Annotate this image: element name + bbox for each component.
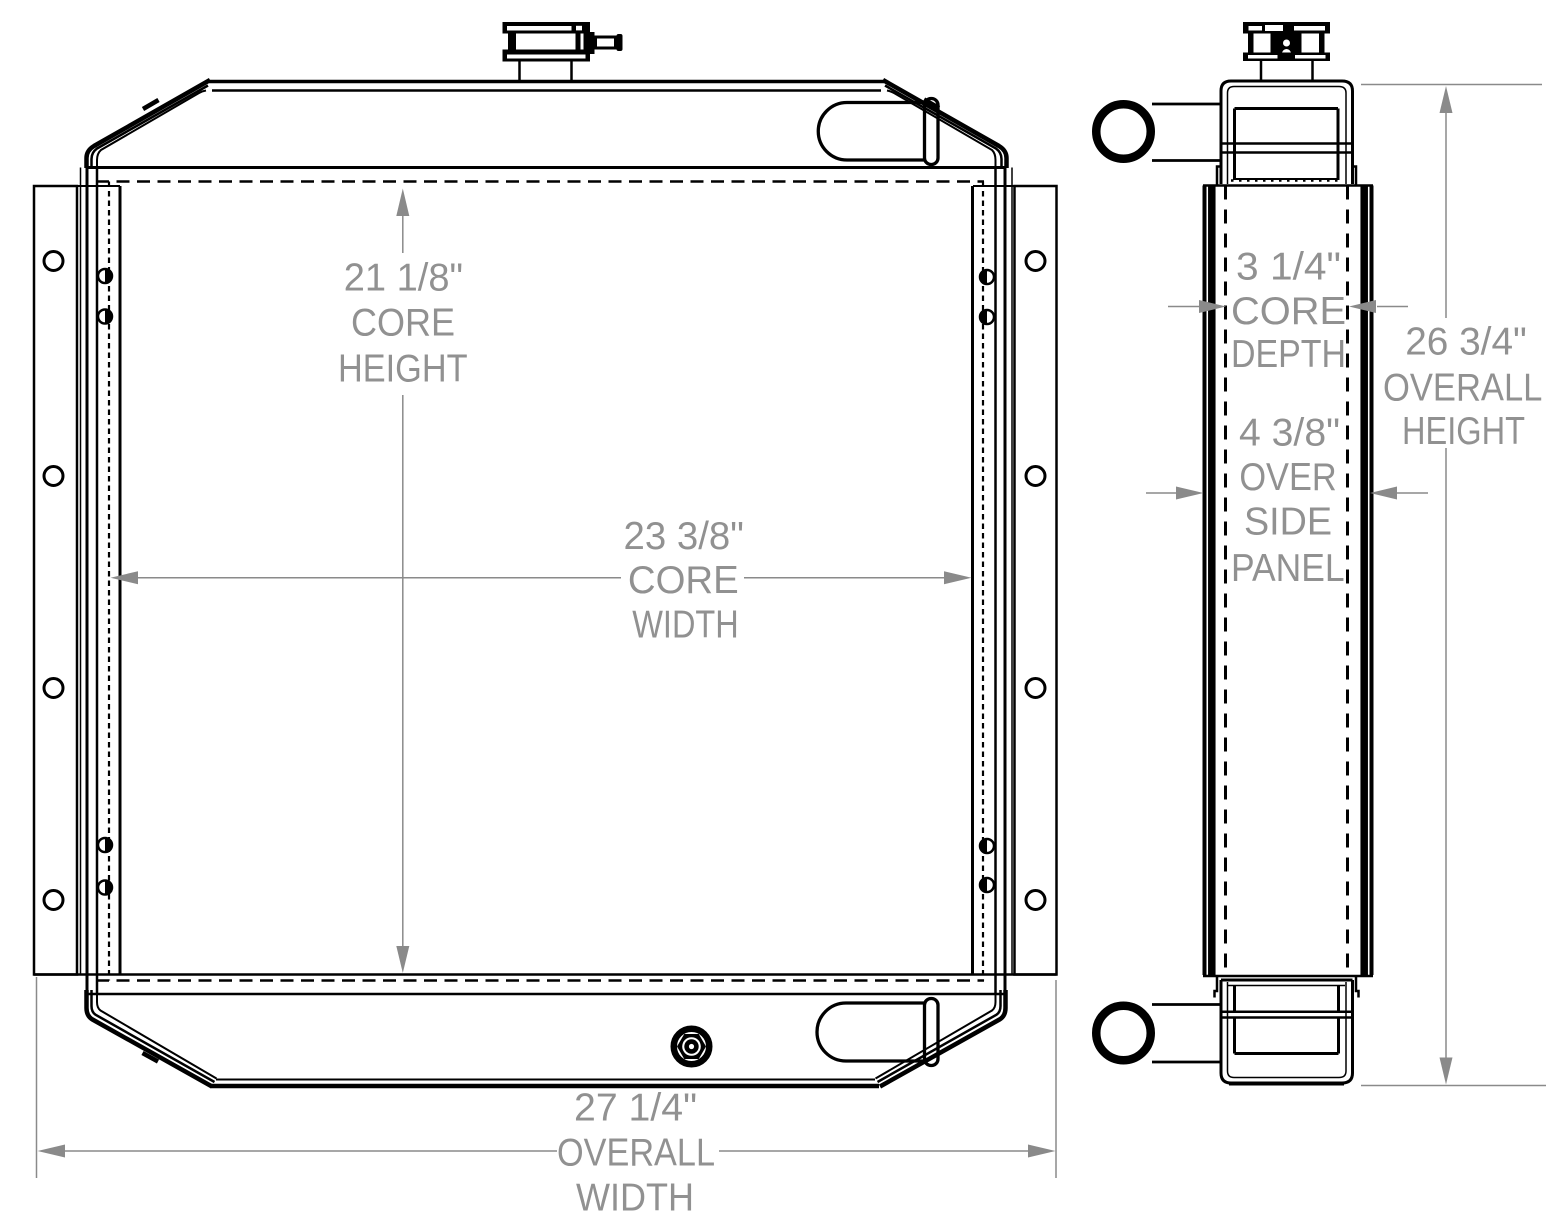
svg-text:4 3/8": 4 3/8": [1239, 411, 1340, 454]
svg-text:3 1/4": 3 1/4": [1236, 246, 1341, 289]
svg-text:21 1/8": 21 1/8": [344, 257, 463, 300]
svg-text:OVERALL: OVERALL: [1383, 367, 1542, 410]
svg-text:DEPTH: DEPTH: [1231, 333, 1346, 376]
svg-text:CORE: CORE: [1231, 290, 1346, 333]
svg-text:CORE: CORE: [628, 559, 739, 602]
svg-text:WIDTH: WIDTH: [576, 1177, 694, 1220]
svg-text:27 1/4": 27 1/4": [574, 1087, 697, 1130]
svg-text:OVER: OVER: [1239, 456, 1336, 499]
svg-text:23 3/8": 23 3/8": [624, 515, 744, 558]
svg-text:26 3/4": 26 3/4": [1405, 320, 1527, 363]
svg-text:HEIGHT: HEIGHT: [338, 347, 468, 390]
svg-text:SIDE: SIDE: [1244, 501, 1332, 544]
svg-text:WIDTH: WIDTH: [632, 604, 739, 647]
svg-text:OVERALL: OVERALL: [557, 1132, 715, 1175]
svg-text:HEIGHT: HEIGHT: [1402, 410, 1525, 453]
svg-text:CORE: CORE: [351, 302, 455, 345]
svg-text:PANEL: PANEL: [1231, 547, 1345, 590]
